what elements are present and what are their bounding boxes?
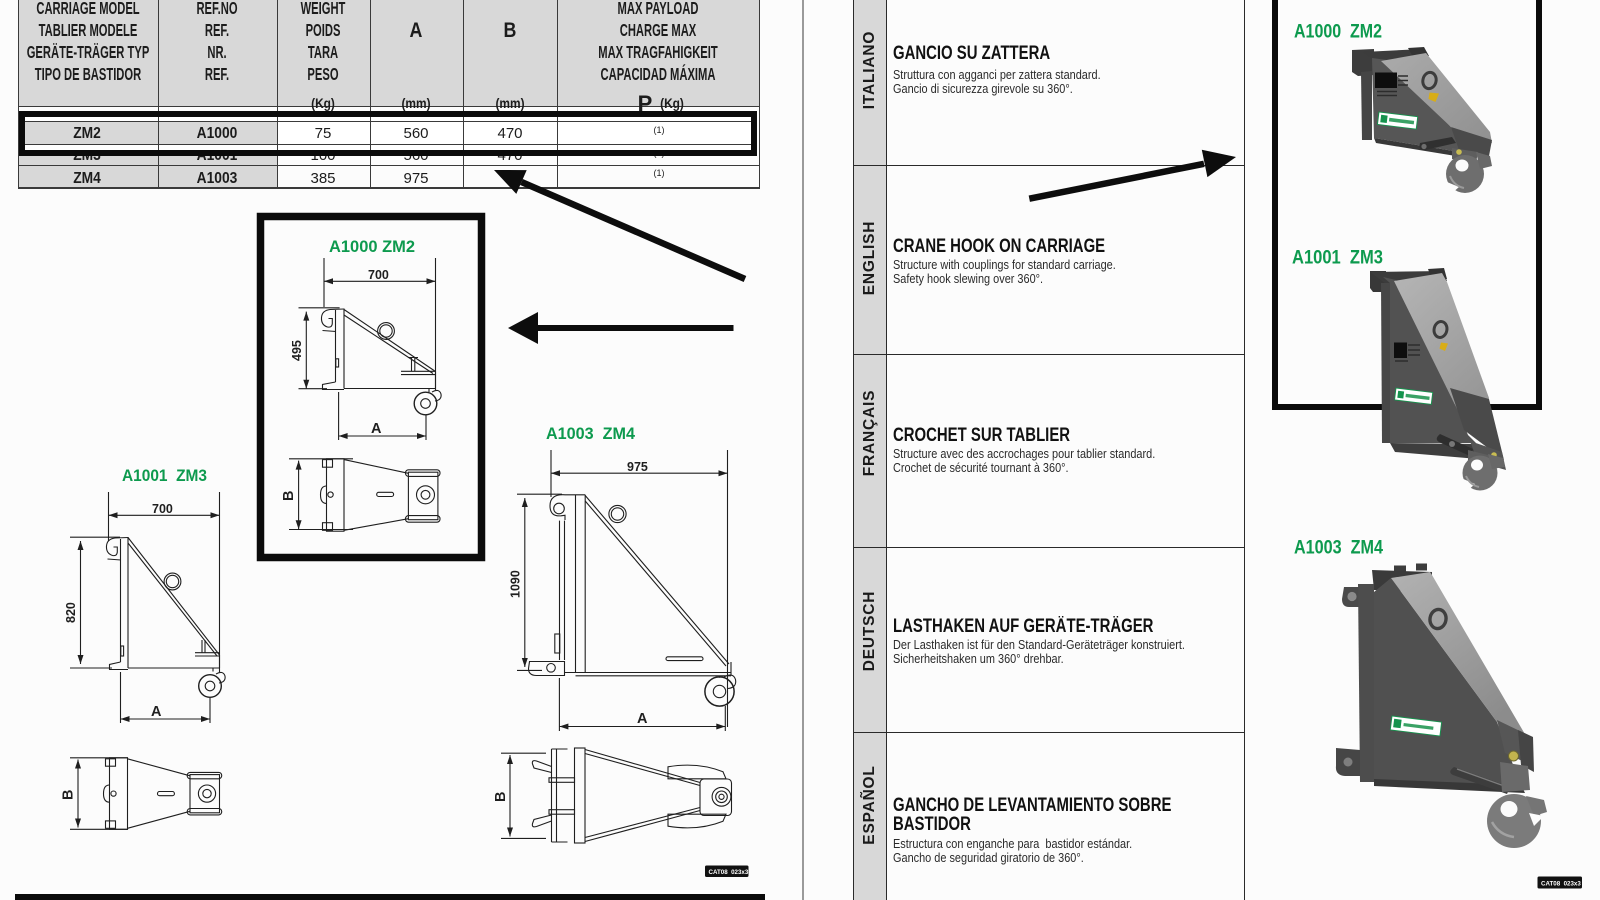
svg-text:A1003 ZM4: A1003 ZM4 (546, 424, 636, 443)
svg-text:A1000 ZM2: A1000 ZM2 (329, 237, 415, 256)
svg-text:A: A (151, 704, 162, 720)
svg-text:B: B (281, 491, 297, 501)
svg-text:A1001 ZM3: A1001 ZM3 (122, 466, 207, 485)
svg-text:A: A (637, 711, 648, 727)
svg-text:1090: 1090 (509, 570, 523, 598)
svg-text:700: 700 (368, 268, 389, 282)
svg-text:820: 820 (64, 602, 78, 623)
svg-text:A: A (371, 421, 382, 437)
svg-text:B: B (493, 792, 509, 802)
svg-text:495: 495 (290, 340, 304, 361)
svg-text:A1001 ZM3: A1001 ZM3 (1292, 247, 1383, 269)
svg-text:A1003 ZM4: A1003 ZM4 (1294, 537, 1383, 559)
svg-text:A1000 ZM2: A1000 ZM2 (1294, 21, 1382, 43)
svg-text:B: B (61, 790, 77, 800)
svg-text:700: 700 (152, 502, 173, 516)
svg-text:975: 975 (627, 460, 648, 474)
svg-text:CAT08 023x3: CAT08 023x3 (1541, 880, 1581, 887)
svg-text:CAT08 023x3: CAT08 023x3 (709, 869, 749, 876)
